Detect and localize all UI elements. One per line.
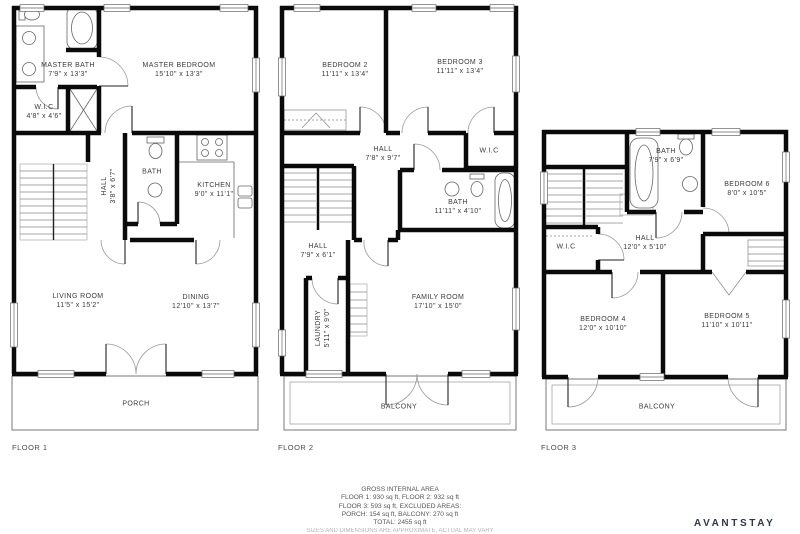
floorplan-page: MASTER BATH 7'9" x 13'3" MASTER BEDROOM … (0, 0, 800, 534)
sink (23, 63, 36, 76)
sink (148, 183, 162, 197)
room-dims: 7'8" x 9'7" (365, 154, 400, 163)
room-label-bath-f2: BATH 11'11" x 4'10" (435, 198, 482, 216)
room-dims: 7'9" x 6'9" (648, 156, 683, 165)
room-name: BEDROOM 3 (437, 58, 484, 67)
floor3-label: FLOOR 3 (541, 443, 577, 452)
avantstay-logo: AVANTSTAY (694, 518, 775, 529)
room-name: BATH (142, 168, 162, 177)
room-label-bedroom3: BEDROOM 3 11'11" x 13'4" (437, 58, 484, 76)
bedroom2-closet (284, 110, 346, 130)
room-dims: 8'0" x 10'5" (724, 189, 770, 198)
room-dims: 11'11" x 13'4" (322, 70, 369, 79)
room-name: FAMILY ROOM (412, 293, 464, 302)
room-dims: 11'10" x 10'11" (701, 321, 752, 330)
room-name: W.I.C (26, 103, 61, 112)
shower (70, 89, 97, 131)
doors (36, 57, 220, 374)
room-name: HALL (365, 145, 400, 154)
room-dims: 5'11" x 9'0" (323, 309, 332, 348)
room-dims: 15'10" x 13'3" (143, 70, 216, 79)
area-total: TOTAL: 2455 sq ft (0, 519, 800, 527)
room-dims: 11'11" x 4'10" (435, 207, 482, 216)
room-name: MASTER BATH (41, 61, 95, 70)
room-name: BALCONY (639, 403, 675, 412)
room-label-balcony-f3: BALCONY (639, 403, 675, 412)
stove (197, 135, 227, 160)
room-dims: 11'5" x 15'2" (52, 301, 103, 310)
room-label-living-room: LIVING ROOM 11'5" x 15'2" (52, 292, 103, 310)
room-label-bedroom6: BEDROOM 6 8'0" x 10'5" (724, 180, 770, 198)
room-label-wic-f2: W.I.C (479, 147, 498, 156)
room-name: LAUNDRY (314, 309, 323, 348)
room-dims: 11'11" x 13'4" (437, 67, 484, 76)
kitchen-counter (177, 162, 234, 238)
sink (23, 32, 36, 45)
bath-fixtures (630, 134, 698, 208)
room-label-hall-upper-f2: HALL 7'8" x 9'7" (365, 145, 400, 163)
area-disclaimer: SIZES AND DIMENSIONS ARE APPROXIMATE, AC… (0, 527, 800, 534)
room-label-laundry: LAUNDRY 5'11" x 9'0" (314, 309, 332, 348)
room-dims: 9'0" x 11'1" (195, 190, 234, 199)
room-label-master-bath: MASTER BATH 7'9" x 13'3" (41, 61, 95, 79)
room-dims: 7'9" x 6'1" (300, 251, 335, 260)
area-summary: GROSS INTERNAL AREA FLOOR 1: 930 sq ft, … (0, 486, 800, 534)
room-label-hall-f1: HALL 3'8" x 6'7" (100, 168, 118, 203)
room-name: BATH (435, 198, 482, 207)
room-label-bedroom2: BEDROOM 2 11'11" x 13'4" (322, 61, 369, 79)
room-dims: 3'8" x 6'7" (109, 168, 118, 203)
room-name: BEDROOM 6 (724, 180, 770, 189)
room-name: DINING (172, 293, 220, 302)
area-floor3-excluded: FLOOR 3: 593 sq ft, EXCLUDED AREAS: (0, 503, 800, 511)
room-dims: 12'0" x 5'10" (623, 243, 667, 252)
walls (542, 130, 788, 377)
room-dims: 12'0" x 10'10" (579, 324, 627, 333)
area-summary-title: GROSS INTERNAL AREA (0, 486, 800, 494)
room-name: MASTER BEDROOM (143, 61, 216, 70)
room-name: BEDROOM 2 (322, 61, 369, 70)
area-floor1-floor2: FLOOR 1: 930 sq ft, FLOOR 2: 932 sq ft (0, 494, 800, 502)
room-dims: 17'10" x 15'0" (412, 302, 464, 311)
room-label-bath-f1: BATH (142, 168, 162, 177)
room-name: LIVING ROOM (52, 292, 103, 301)
room-name: W.I.C (479, 147, 498, 156)
sink (445, 182, 459, 196)
floor3-plan (530, 0, 800, 460)
room-label-dining: DINING 12'10" x 13'7" (172, 293, 220, 311)
room-name: BEDROOM 4 (579, 315, 627, 324)
room-name: HALL (300, 242, 335, 251)
room-dims: 4'8" x 4'6" (26, 112, 61, 121)
room-name: W.I.C (556, 243, 575, 252)
room-label-master-bedroom: MASTER BEDROOM 15'10" x 13'3" (143, 61, 216, 79)
room-label-bath-f3: BATH 7'9" x 6'9" (648, 147, 683, 165)
toilet (470, 174, 484, 179)
room-label-hall-f3: HALL 12'0" x 5'10" (623, 234, 667, 252)
room-label-kitchen: KITCHEN 9'0" x 11'1" (195, 181, 234, 199)
room-label-wic-f1: W.I.C 4'8" x 4'6" (26, 103, 61, 121)
toilet (147, 137, 164, 143)
room-name: BATH (648, 147, 683, 156)
area-porch-balcony: PORCH: 154 sq ft, BALCONY: 270 sq ft (0, 511, 800, 519)
room-name: KITCHEN (195, 181, 234, 190)
sink (683, 177, 698, 192)
floor1-label: FLOOR 1 (12, 443, 48, 452)
room-label-bedroom5: BEDROOM 5 11'10" x 10'11" (701, 312, 752, 330)
kitchen-sink (238, 186, 252, 196)
room-dims: 12'10" x 13'7" (172, 302, 220, 311)
room-label-balcony-f2: BALCONY (381, 403, 417, 412)
floor2-plan (270, 0, 530, 460)
floor2-label: FLOOR 2 (278, 443, 314, 452)
room-name: PORCH (122, 400, 149, 409)
room-name: HALL (623, 234, 667, 243)
room-name: BEDROOM 5 (701, 312, 752, 321)
stairs (20, 164, 87, 240)
room-dims: 7'9" x 13'3" (41, 70, 95, 79)
room-name: HALL (100, 168, 109, 203)
room-label-bedroom4: BEDROOM 4 12'0" x 10'10" (579, 315, 627, 333)
room-label-hall-lower-f2: HALL 7'9" x 6'1" (300, 242, 335, 260)
bifold-door (712, 272, 746, 295)
room-label-family-room: FAMILY ROOM 17'10" x 15'0" (412, 293, 464, 311)
room-label-porch: PORCH (122, 400, 149, 409)
bath-kitchen-fixtures (16, 7, 252, 238)
room-label-wic-f3: W.I.C (556, 243, 575, 252)
room-name: BALCONY (381, 403, 417, 412)
toilet (678, 134, 694, 139)
